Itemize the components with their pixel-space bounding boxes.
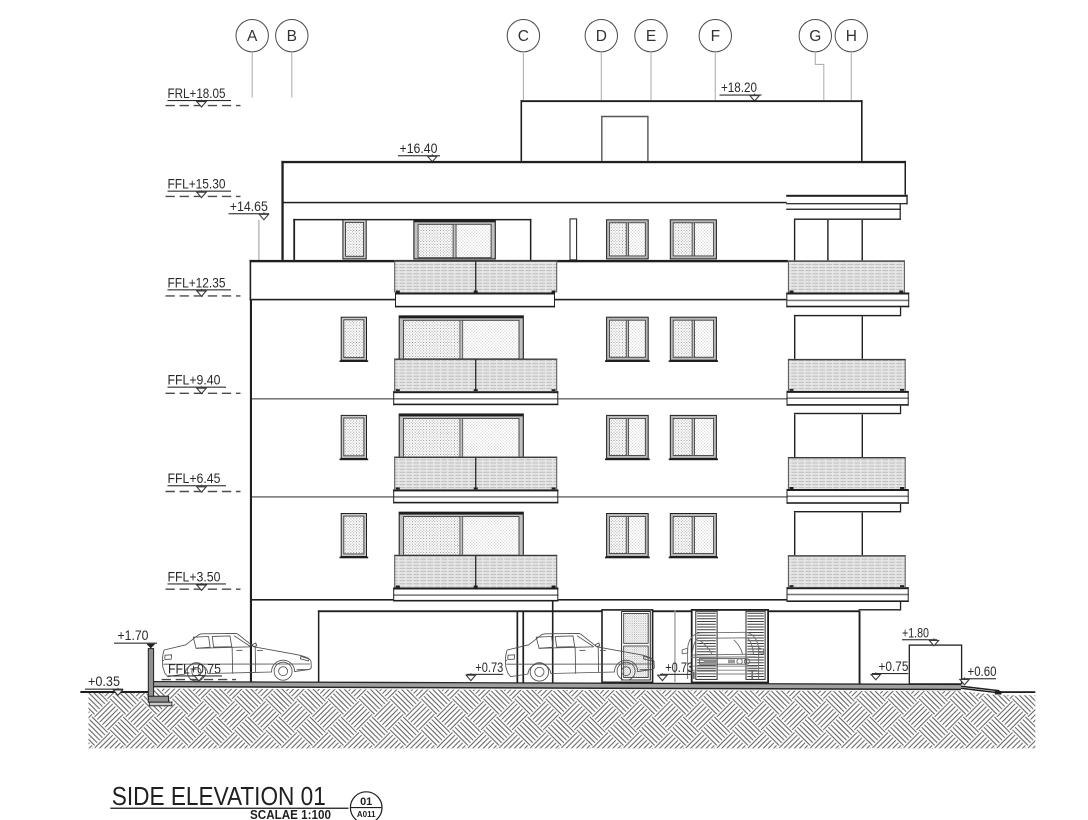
svg-text:G: G — [809, 28, 821, 45]
svg-text:+1.70: +1.70 — [118, 627, 149, 643]
svg-text:+0.73: +0.73 — [665, 659, 693, 675]
svg-text:B: B — [287, 28, 297, 45]
svg-text:+0.75: +0.75 — [879, 658, 909, 674]
svg-text:SCALAE 1:100: SCALAE 1:100 — [250, 808, 331, 820]
svg-text:D: D — [596, 28, 607, 45]
svg-text:A011: A011 — [357, 810, 376, 819]
svg-text:+0.73: +0.73 — [475, 659, 503, 675]
svg-text:H: H — [846, 28, 857, 45]
svg-text:+0.35: +0.35 — [88, 673, 120, 689]
svg-text:C: C — [518, 28, 529, 45]
svg-text:SIDE ELEVATION 01: SIDE ELEVATION 01 — [112, 781, 326, 811]
svg-text:+18.20: +18.20 — [721, 79, 757, 95]
svg-text:FFL+6.45: FFL+6.45 — [168, 470, 221, 486]
svg-text:E: E — [646, 28, 656, 45]
svg-text:FFL+12.35: FFL+12.35 — [168, 274, 226, 290]
svg-text:FFL+9.40: FFL+9.40 — [168, 372, 221, 388]
svg-text:+0.60: +0.60 — [968, 663, 997, 679]
svg-text:01: 01 — [360, 796, 372, 808]
svg-text:F: F — [711, 28, 720, 45]
svg-text:A: A — [247, 28, 258, 45]
svg-text:FFL+15.30: FFL+15.30 — [168, 176, 226, 192]
svg-text:+1.80: +1.80 — [902, 625, 929, 641]
svg-text:FFL+0.75: FFL+0.75 — [168, 660, 221, 676]
svg-text:FFL+3.50: FFL+3.50 — [168, 568, 221, 584]
svg-text:+14.65: +14.65 — [230, 198, 268, 214]
svg-text:FRL+18.05: FRL+18.05 — [168, 85, 226, 101]
svg-text:+16.40: +16.40 — [400, 140, 438, 156]
